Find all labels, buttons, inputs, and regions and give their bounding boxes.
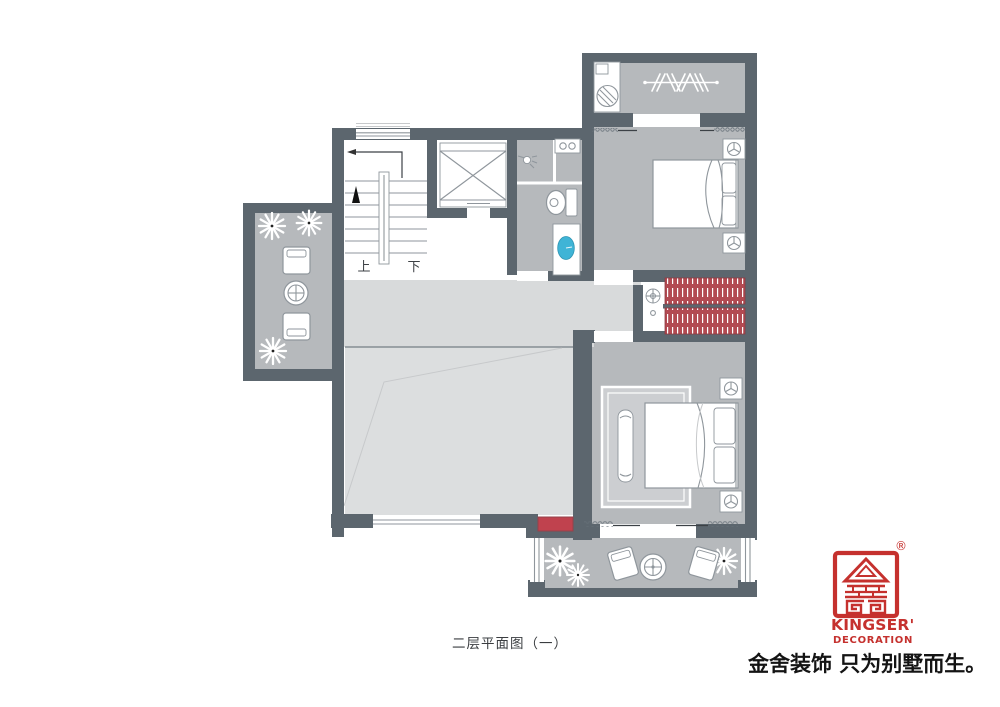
- balcony-post-left: [528, 580, 545, 597]
- double-bed-icon: [645, 403, 738, 488]
- round-table-icon: [640, 554, 666, 580]
- void-window-icon: [373, 516, 480, 528]
- stair-window-icon: [356, 124, 410, 140]
- balcony-post-right: [738, 580, 757, 597]
- round-table-icon: [284, 281, 308, 305]
- vanity-sink-icon: [553, 224, 580, 275]
- corridor-arm-floor: [576, 282, 643, 332]
- logo-wordmark: KINGSER': [831, 616, 909, 634]
- red-cabinet: [538, 517, 573, 531]
- armchair-icon: [283, 313, 310, 340]
- registered-mark: ®: [895, 539, 907, 553]
- balcony-window-right-icon: [741, 538, 755, 582]
- hvac-fan-icon: [720, 491, 742, 512]
- stair-up-label: 上: [357, 260, 370, 275]
- bathroom-door-opening: [517, 271, 548, 281]
- balcony-window-left-icon: [530, 538, 544, 582]
- bedroom-top-door-opening: [594, 273, 633, 285]
- hvac-fan-icon: [723, 139, 745, 159]
- elevator-icon: [440, 143, 506, 207]
- toilet-icon: [547, 189, 578, 216]
- kingser-logo-icon: [832, 550, 902, 620]
- corridor-floor: [344, 280, 594, 347]
- hvac-fan-icon: [723, 233, 745, 253]
- bench-icon: [618, 410, 633, 482]
- bedroom-bottom-door-opening: [594, 331, 633, 342]
- window-track-icon: [714, 127, 745, 133]
- brand-slogan: 金舍装饰 只为别墅而生。: [748, 648, 998, 678]
- plan-caption: 二层平面图（一）: [410, 632, 610, 652]
- stair-down-label: 下: [407, 260, 420, 275]
- window-track-icon: [592, 128, 618, 134]
- wardrobe-icon: [665, 278, 745, 304]
- armchair-icon: [283, 247, 310, 274]
- laundry-door-opening: [633, 114, 700, 127]
- basin-counter-icon: [555, 139, 580, 153]
- double-bed-icon: [653, 160, 738, 228]
- hvac-fan-icon: [720, 378, 742, 399]
- wardrobe-icon: [665, 308, 745, 334]
- bedroom-bottom: [602, 378, 742, 512]
- floorplan-page: 上 下: [0, 0, 1000, 707]
- void-space-floor: [345, 347, 576, 515]
- logo-subtitle: DECORATION: [833, 635, 909, 646]
- washing-machine-icon: [594, 62, 620, 112]
